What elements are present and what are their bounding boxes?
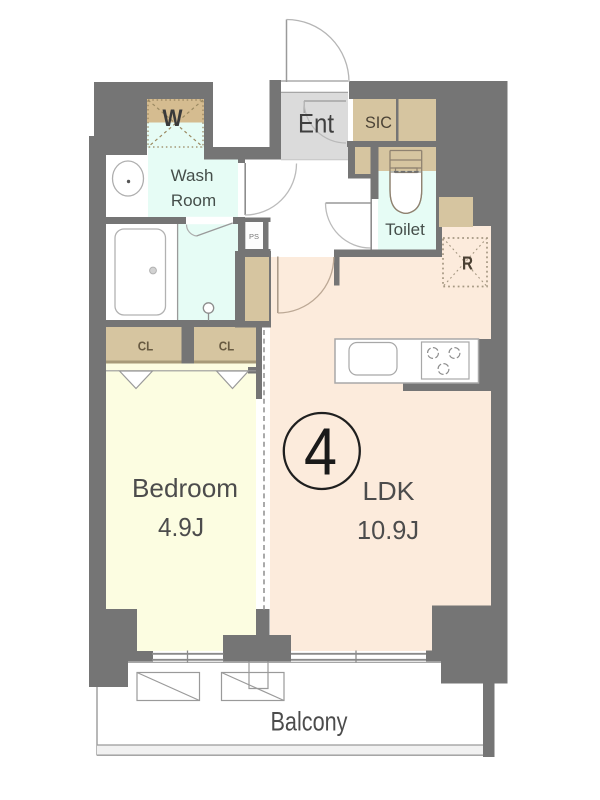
svg-text:CL: CL [219, 339, 235, 354]
svg-text:Toilet: Toilet [385, 220, 425, 239]
svg-text:W: W [163, 105, 183, 132]
svg-text:R: R [462, 254, 473, 274]
svg-text:Bedroom: Bedroom [132, 473, 238, 503]
svg-text:Wash: Wash [171, 166, 214, 185]
svg-text:PS: PS [249, 232, 259, 241]
svg-text:Room: Room [171, 191, 216, 210]
svg-text:CL: CL [138, 339, 154, 354]
svg-text:LDK: LDK [363, 476, 416, 506]
svg-text:10.9J: 10.9J [357, 515, 419, 545]
svg-text:4.9J: 4.9J [158, 512, 204, 542]
svg-text:Ent: Ent [298, 109, 334, 139]
svg-text:Balcony: Balcony [271, 707, 348, 737]
svg-text:4: 4 [304, 415, 337, 490]
svg-text:SIC: SIC [365, 113, 392, 132]
